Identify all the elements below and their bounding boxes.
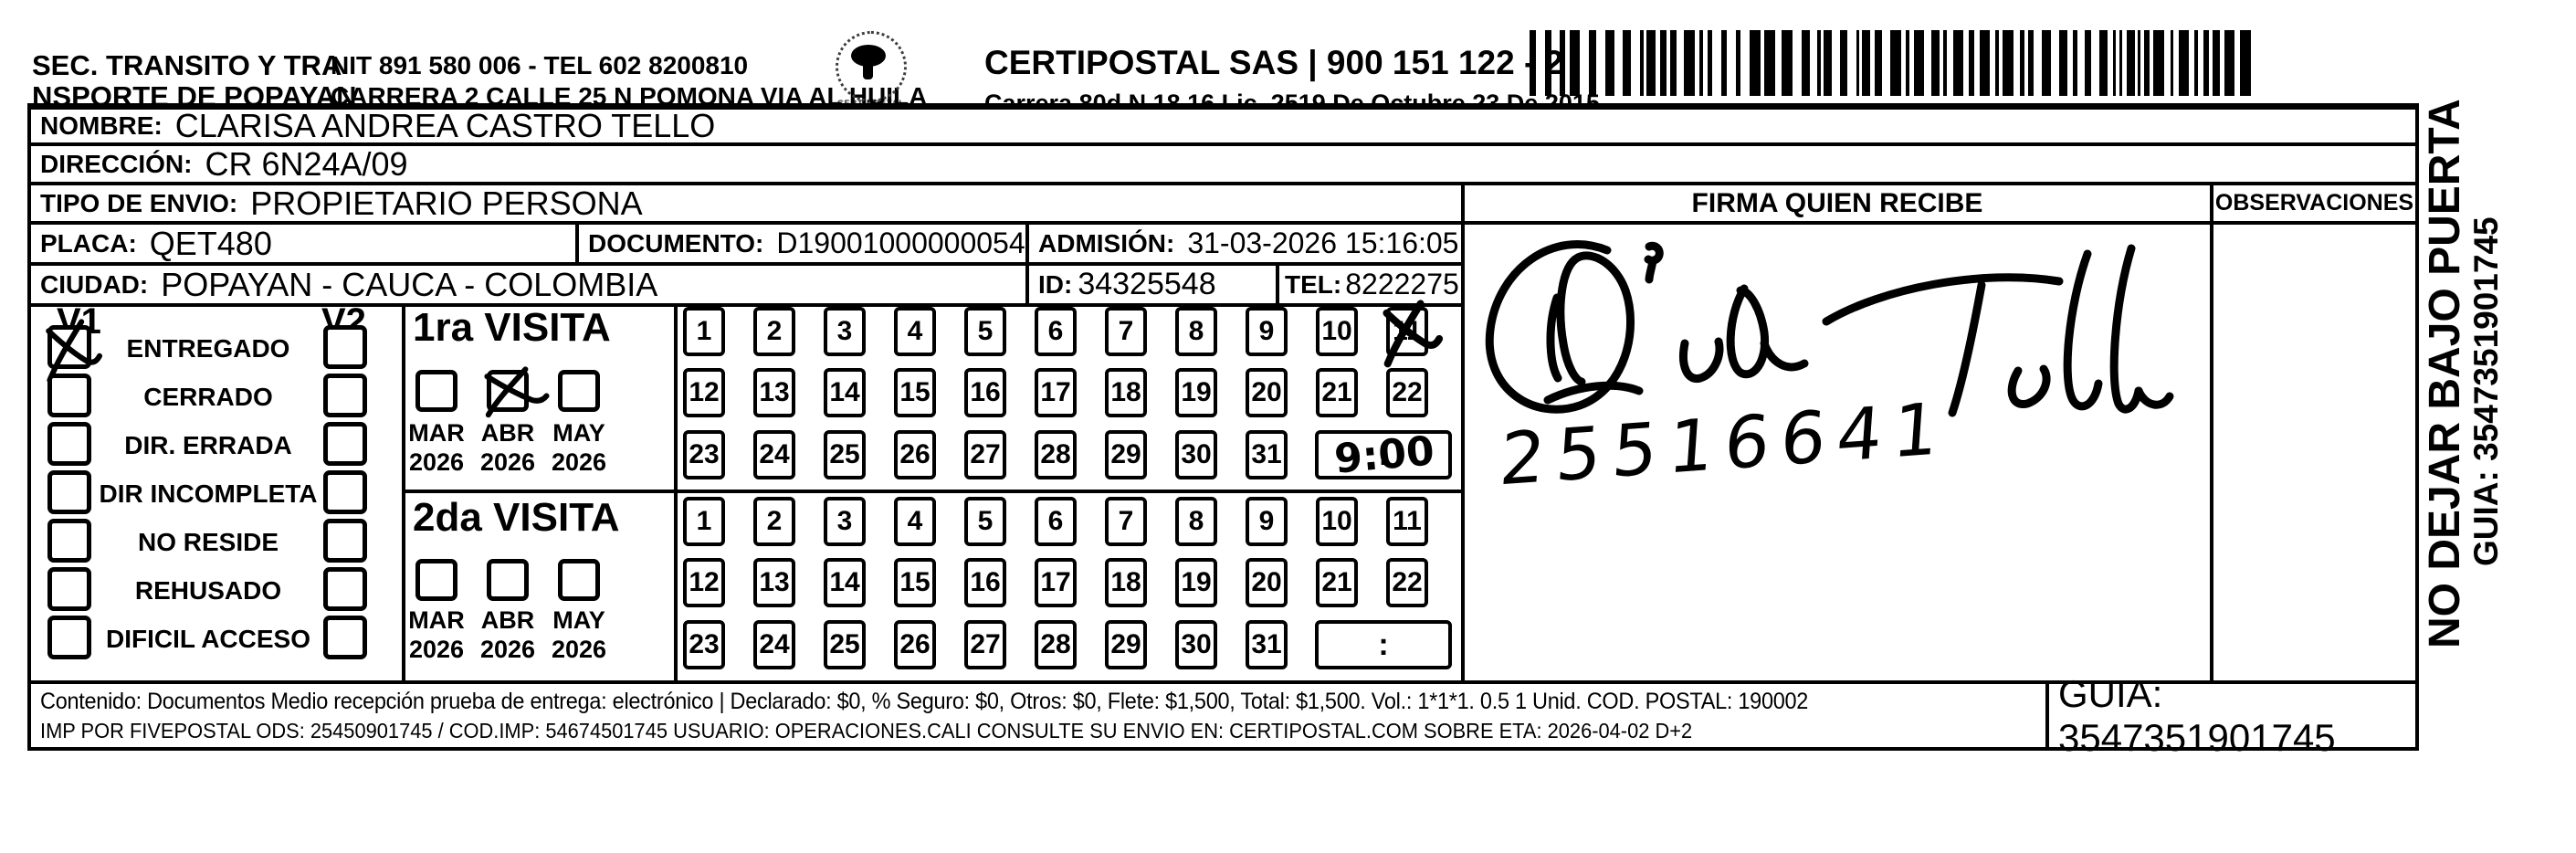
tel-value: 8222275: [1345, 268, 1459, 301]
day-box: 9: [1246, 497, 1288, 546]
direccion-row: DIRECCIÓN: CR 6N24A/09: [27, 142, 2419, 185]
nombre-label: NOMBRE:: [40, 111, 163, 141]
barcode-bar: [1890, 30, 1901, 96]
day-box: 6: [1035, 497, 1077, 546]
day-box: 10: [1316, 307, 1358, 356]
day-box: 28: [1035, 620, 1077, 669]
barcode-bar: [1660, 30, 1667, 96]
barcode-bar: [2113, 30, 2116, 96]
status-label: REHUSADO: [95, 576, 321, 606]
status-checkbox-v1: [47, 470, 91, 514]
status-checkbox-v1: [47, 422, 91, 466]
status-checkbox-v1: [47, 325, 91, 369]
day-box: 21: [1316, 558, 1358, 607]
status-checkbox-v1: [47, 616, 91, 659]
day-box: 9: [1246, 307, 1288, 356]
day-box: 28: [1035, 430, 1077, 479]
direccion-value: CR 6N24A/09: [205, 145, 407, 184]
barcode-bar: [2144, 30, 2150, 96]
sender-line1: SEC. TRANSITO Y TRA: [32, 50, 356, 81]
placa-cell: PLACA: QET480: [27, 221, 579, 266]
day-box: 2: [753, 497, 795, 546]
month-year-label: 2026: [476, 448, 540, 477]
day-box: 1: [683, 497, 725, 546]
day-box: 6: [1035, 307, 1077, 356]
barcode-bar: [2020, 30, 2024, 96]
barcode-bar: [2028, 30, 2034, 96]
month-year-label: 2026: [476, 636, 540, 664]
barcode-bar: [1969, 30, 1974, 96]
day-box: 14: [824, 368, 866, 417]
barcode-bar: [1943, 30, 1947, 96]
day-box: 8: [1175, 307, 1217, 356]
footer-content-line: Contenido: Documentos Medio recepción pr…: [40, 689, 1808, 715]
admision-label: ADMISIÓN:: [1038, 229, 1174, 258]
day-box: 18: [1105, 368, 1147, 417]
status-label: ENTREGADO: [95, 334, 321, 363]
barcode-bar: [1646, 30, 1656, 96]
barcode-bar: [1980, 30, 1990, 96]
day-box: 30: [1175, 430, 1217, 479]
documento-label: DOCUMENTO:: [588, 229, 763, 258]
day-box: 12: [683, 558, 725, 607]
month-year-label: 2026: [405, 448, 468, 477]
barcode-bar: [1640, 30, 1644, 96]
id-value: 34325548: [1078, 267, 1215, 302]
month-checkbox: [487, 559, 529, 601]
day-box: 16: [964, 368, 1006, 417]
barcode-bar: [1875, 30, 1882, 96]
day-box: 23: [683, 430, 725, 479]
visit-title: 2da VISITA: [413, 495, 620, 541]
ciudad-value: POPAYAN - CAUCA - COLOMBIA: [161, 266, 657, 304]
firma-header: FIRMA QUIEN RECIBE: [1692, 188, 1983, 219]
barcode-bar: [2240, 30, 2251, 96]
month-checkbox: [415, 370, 457, 412]
footer-guia-value: GUIA: 3547351901745: [2058, 672, 2406, 760]
barcode-bar: [2224, 30, 2234, 96]
logo-glyph-icon: [836, 31, 901, 97]
carrier-name: CERTIPOSTAL SAS | 900 151 122 - 2: [984, 44, 1600, 82]
day-box: 8: [1175, 497, 1217, 546]
barcode-bar: [2073, 30, 2077, 96]
barcode-bar: [2153, 30, 2164, 96]
tel-cell: TEL: 8222275: [1276, 262, 1465, 307]
ciudad-cell: CIUDAD: POPAYAN - CAUCA - COLOMBIA: [27, 262, 1029, 307]
day-box: 17: [1035, 558, 1077, 607]
month-label: ABR: [476, 419, 540, 448]
day-box: 7: [1105, 307, 1147, 356]
barcode-bar: [2138, 30, 2140, 96]
day-box: 4: [894, 307, 936, 356]
status-label: DIFICIL ACCESO: [95, 625, 321, 654]
day-box: 26: [894, 430, 936, 479]
day-box: 3: [824, 497, 866, 546]
status-checkbox-v1: [47, 567, 91, 611]
status-checkbox-v2: [323, 325, 367, 369]
barcode-bar: [2042, 30, 2051, 96]
firma-header-cell: FIRMA QUIEN RECIBE: [1461, 182, 2213, 225]
day-box: 19: [1175, 368, 1217, 417]
month-label: MAY: [547, 606, 611, 635]
documento-cell: DOCUMENTO: D19001000000054744713: [575, 221, 1029, 266]
footer-content-cell: Contenido: Documentos Medio recepción pr…: [27, 680, 2049, 751]
side-warning: NO DEJAR BAJO PUERTA: [2420, 137, 2470, 648]
month-label: MAR: [405, 606, 468, 635]
month-label: MAR: [405, 419, 468, 448]
observaciones-header: OBSERVACIONES: [2215, 190, 2413, 216]
observaciones-area: [2210, 221, 2419, 684]
status-checkbox-v2: [323, 470, 367, 514]
month-year-label: 2026: [547, 448, 611, 477]
day-box: 30: [1175, 620, 1217, 669]
day-box: 12: [683, 368, 725, 417]
day-box: 15: [894, 558, 936, 607]
day-box: 11: [1386, 307, 1428, 356]
status-checkbox-v1: [47, 519, 91, 563]
barcode-bar: [1906, 30, 1909, 96]
month-checkbox: [558, 559, 600, 601]
barcode-bar: [1589, 30, 1596, 96]
day-box: 1: [683, 307, 725, 356]
barcode-bar: [2171, 30, 2173, 96]
barcode-bar: [2119, 30, 2122, 96]
barcode-bar: [2179, 30, 2189, 96]
barcode-bar: [2203, 30, 2209, 96]
side-guia: GUIA: 3547351901745: [2467, 155, 2506, 566]
tipo-envio-cell: TIPO DE ENVIO: PROPIETARIO PERSONA: [27, 182, 1465, 225]
barcode-bar: [2059, 30, 2067, 96]
barcode-bar: [1560, 30, 1565, 96]
visit-title: 1ra VISITA: [413, 305, 611, 351]
status-checkbox-v2: [323, 616, 367, 659]
day-box: 29: [1105, 620, 1147, 669]
day-box: 5: [964, 307, 1006, 356]
day-box: 17: [1035, 368, 1077, 417]
barcode-bar: [1623, 30, 1631, 96]
day-box: 2: [753, 307, 795, 356]
placa-value: QET480: [150, 225, 272, 263]
barcode-bar: [1953, 30, 1963, 96]
day-box: 22: [1386, 368, 1428, 417]
status-label: DIR. ERRADA: [95, 431, 321, 460]
barcode-bar: [1862, 30, 1870, 96]
barcode-bar: [1764, 30, 1775, 96]
tipo-envio-label: TIPO DE ENVIO:: [40, 189, 237, 218]
day-box: 7: [1105, 497, 1147, 546]
status-checkbox-v2: [323, 422, 367, 466]
barcode-bar: [2127, 30, 2135, 96]
barcode-bar: [2194, 30, 2198, 96]
month-year-label: 2026: [547, 636, 611, 664]
barcode-bar: [1914, 30, 1924, 96]
barcode-bar: [1817, 30, 1821, 96]
barcode-bar: [2085, 30, 2091, 96]
placa-label: PLACA:: [40, 229, 137, 258]
barcode-bar: [1995, 30, 1999, 96]
day-box: 27: [964, 430, 1006, 479]
status-checkbox-v1: [47, 374, 91, 417]
status-label: NO RESIDE: [95, 528, 321, 557]
shipping-label: SEC. TRANSITO Y TRA NSPORTE DE POPAYAN N…: [0, 0, 2576, 853]
day-box: 13: [753, 368, 795, 417]
id-cell: ID: 34325548: [1025, 262, 1279, 307]
barcode-bar: [1750, 30, 1761, 96]
day-box: 14: [824, 558, 866, 607]
day-box: 16: [964, 558, 1006, 607]
month-checkbox: [487, 370, 529, 412]
day-box: 21: [1316, 368, 1358, 417]
barcode-bar: [1684, 30, 1695, 96]
month-checkbox: [415, 559, 457, 601]
barcode-bar: [1530, 30, 1536, 96]
day-box: 3: [824, 307, 866, 356]
ciudad-label: CIUDAD:: [40, 270, 148, 300]
day-box: 31: [1246, 620, 1288, 669]
day-box: 10: [1316, 497, 1358, 546]
day-box: 18: [1105, 558, 1147, 607]
month-checkbox: [558, 370, 600, 412]
day-box: 24: [753, 430, 795, 479]
barcode-bar: [1802, 30, 1810, 96]
day-box: 20: [1246, 368, 1288, 417]
time-box: :: [1315, 620, 1452, 669]
tipo-envio-value: PROPIETARIO PERSONA: [250, 184, 642, 223]
day-box: 5: [964, 497, 1006, 546]
day-box: 31: [1246, 430, 1288, 479]
barcode-bar: [2213, 30, 2220, 96]
status-label: CERRADO: [95, 383, 321, 412]
day-box: 27: [964, 620, 1006, 669]
barcode-bar: [1824, 30, 1832, 96]
day-box: 29: [1105, 430, 1147, 479]
day-box: 19: [1175, 558, 1217, 607]
barcode-bar: [1670, 30, 1677, 96]
nombre-row: NOMBRE: CLARISA ANDREA CASTRO TELLO: [27, 103, 2419, 146]
admision-value: 31-03-2026 15:16:05: [1187, 226, 1458, 260]
status-label: DIR INCOMPLETA: [95, 479, 321, 509]
observaciones-header-cell: OBSERVACIONES: [2210, 182, 2419, 225]
id-label: ID:: [1038, 270, 1072, 300]
day-box: 25: [824, 430, 866, 479]
barcode-bar: [1736, 30, 1740, 96]
day-box: 4: [894, 497, 936, 546]
day-box: 15: [894, 368, 936, 417]
day-box: 26: [894, 620, 936, 669]
barcode-bar: [1699, 30, 1703, 96]
status-checkbox-v2: [323, 374, 367, 417]
day-box: 20: [1246, 558, 1288, 607]
barcode-bar: [2003, 30, 2013, 96]
barcode-bar: [1840, 30, 1847, 96]
footer-imp-line: IMP POR FIVEPOSTAL ODS: 25450901745 / CO…: [40, 719, 1692, 743]
certipostal-logo: CERTIPOSTAL: [826, 31, 918, 113]
tel-label: TEL:: [1285, 270, 1341, 300]
barcode-bar: [1721, 30, 1727, 96]
barcode-bar: [1782, 30, 1793, 96]
barcode-bar: [1931, 30, 1940, 96]
day-box: 23: [683, 620, 725, 669]
nombre-value: CLARISA ANDREA CASTRO TELLO: [175, 107, 716, 145]
barcode-bar: [1545, 30, 1551, 96]
barcode-bar: [1570, 30, 1580, 96]
month-year-label: 2026: [405, 636, 468, 664]
day-box: 13: [753, 558, 795, 607]
status-checkbox-v2: [323, 567, 367, 611]
admision-cell: ADMISIÓN: 31-03-2026 15:16:05: [1025, 221, 1465, 266]
barcode-bar: [1605, 30, 1614, 96]
barcode-bar: [1708, 30, 1712, 96]
month-label: MAY: [547, 419, 611, 448]
day-box: 25: [824, 620, 866, 669]
direccion-label: DIRECCIÓN:: [40, 150, 192, 179]
barcode-bar: [2099, 30, 2108, 96]
day-box: 11: [1386, 497, 1428, 546]
footer-guia-cell: GUIA: 3547351901745: [2045, 680, 2419, 751]
status-checkbox-v2: [323, 519, 367, 563]
barcode: [1530, 30, 2255, 96]
barcode-bar: [1856, 30, 1859, 96]
month-label: ABR: [476, 606, 540, 635]
day-box: 24: [753, 620, 795, 669]
day-box: 22: [1386, 558, 1428, 607]
